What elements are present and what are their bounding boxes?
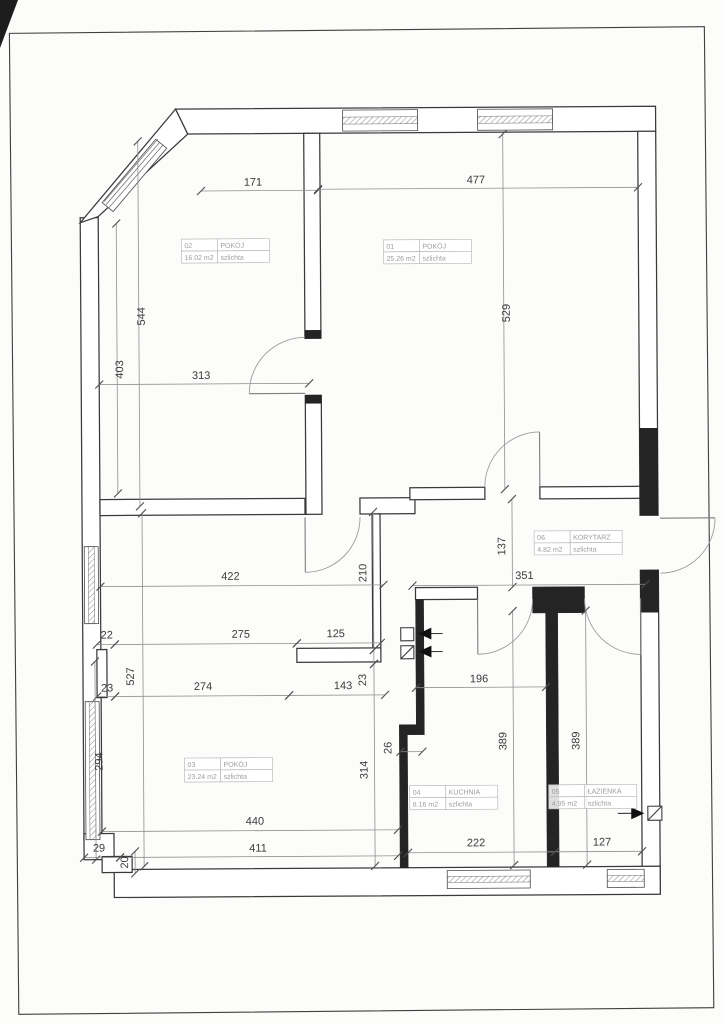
window-bottom-bath (607, 869, 644, 887)
airflow-right-arrow-icon (618, 808, 643, 818)
dimension-label: 275 (232, 629, 250, 641)
room-number: 03 (188, 762, 196, 769)
room-finish: szlichta (220, 255, 243, 262)
room-label: 04KUCHNIA8.16 m2szlichta (410, 785, 498, 810)
dimension: 477 (314, 173, 642, 193)
room-finish: szlichta (422, 255, 445, 262)
dimension-label: 544 (136, 307, 148, 325)
window-top-1 (343, 110, 418, 131)
dimension: 171 (197, 176, 322, 195)
dimension: 274 (111, 680, 293, 700)
wall-mid-left-b (360, 498, 415, 514)
dimension: 143 (285, 680, 389, 700)
door-room01 (485, 432, 540, 487)
dimension-label: 274 (194, 681, 212, 693)
room-finish: szlichta (449, 801, 472, 808)
dimension: 527 (124, 509, 148, 870)
door-entrance (660, 518, 715, 573)
dimension: 351 (408, 569, 649, 589)
dimension: 313 (95, 369, 313, 388)
room-name: KORYTARZ (573, 534, 611, 541)
room-label: 01POKÓJ25.26 m2szlichta (383, 239, 471, 264)
dimension: 389 (570, 607, 592, 869)
window-bottom-kitchen (447, 870, 530, 889)
dimension: 389 (497, 607, 519, 869)
dimension-label: 210 (357, 564, 369, 582)
dimension: 222 (404, 837, 559, 857)
dimension-label: 314 (359, 761, 371, 779)
door-room03 (305, 517, 360, 572)
vent-duct-diagonal-icon (648, 806, 662, 820)
wall-mid-right-b (540, 486, 640, 499)
dimension-label: 440 (246, 816, 264, 828)
wall-room01-02-lower (305, 395, 322, 514)
room-area: 23.24 m2 (188, 774, 217, 781)
room-name: POKÓJ (422, 241, 446, 250)
plan-geometry: 1714775445294033134222101373512227512552… (76, 106, 718, 898)
dimension-label: 389 (570, 731, 582, 749)
window-top-2 (478, 109, 553, 130)
dimension-label: 26 (382, 742, 394, 754)
dimension-label: 422 (221, 571, 239, 583)
dimension-label: 29 (93, 843, 105, 855)
room-finish: szlichta (224, 774, 247, 781)
wall-mid-right-a (410, 487, 485, 499)
dimension-label: 527 (125, 667, 137, 685)
dimension-label: 125 (327, 628, 345, 640)
dimension: 314 (358, 660, 379, 870)
room-finish: szlichta (588, 800, 611, 807)
wall-kitchen-step (399, 725, 424, 735)
dimension: 529 (499, 130, 514, 493)
dimension-label: 389 (497, 732, 509, 750)
floor-plan-svg: 1714775445294033134222101373512227512552… (0, 0, 724, 1024)
window-left-1 (84, 547, 98, 624)
room-name: POKÓJ (224, 760, 248, 769)
dimension-label: 222 (467, 837, 485, 849)
wall-mid-left-a (100, 498, 305, 515)
wall-bottom (114, 866, 660, 897)
dimension-label: 137 (496, 537, 508, 555)
pier-kitchen-bath (532, 587, 584, 613)
wall-cap (305, 395, 321, 403)
dimension: 127 (551, 836, 646, 856)
wall-cap (305, 330, 321, 338)
dimension: 544 (134, 137, 149, 510)
room-number: 01 (386, 244, 394, 251)
room-label: 02POKÓJ16.02 m2szlichta (181, 239, 269, 264)
window-chamfer (102, 139, 167, 211)
dimension-label: 143 (334, 680, 352, 692)
wall-right-entry-pier (640, 570, 658, 612)
room-label: 06KORYTARZ4.82 m2szlichta (534, 530, 622, 555)
room-number: 02 (184, 243, 192, 250)
room-area: 8.16 m2 (413, 802, 438, 809)
wall-notch (297, 648, 381, 663)
dimension-label: 529 (501, 304, 513, 322)
scanned-floor-plan-page: 1714775445294033134222101373512227512552… (0, 0, 724, 1024)
room-area: 4.82 m2 (537, 547, 562, 554)
dimension-label: 20 (119, 856, 131, 868)
wall-right-lower (640, 570, 660, 894)
dimension: 422 (96, 570, 387, 591)
room-finish: szlichta (573, 547, 596, 554)
dimension-label: 477 (467, 174, 485, 186)
dimension-label: 403 (114, 360, 126, 378)
dimension: 411 (116, 842, 402, 862)
room-area: 25.26 m2 (386, 256, 415, 263)
wall-corridor-bottom (415, 587, 477, 599)
room-name: POKÓJ (220, 241, 244, 250)
dimension: 137 (496, 495, 517, 591)
dimension-label: 22 (101, 630, 113, 642)
wall-kitchen-bath (546, 613, 560, 867)
dimension: 275 (111, 628, 301, 648)
dimension-label: 127 (593, 836, 611, 848)
room-number: 05 (552, 789, 560, 796)
vent-duct-icon (401, 628, 414, 641)
dimension-label: 294 (93, 752, 105, 770)
room-area: 16.02 m2 (184, 255, 213, 262)
room-number: 06 (537, 535, 545, 542)
dimension-label: 351 (515, 570, 533, 582)
dimension-label: 411 (249, 843, 267, 855)
room-area: 4.95 m2 (552, 801, 577, 808)
dimension-label: 196 (470, 673, 488, 685)
dimension: 125 (293, 628, 385, 648)
wall-room01-02-upper (304, 133, 321, 338)
dimension: 403 (112, 219, 127, 497)
door-room02 (249, 337, 305, 393)
door-kitchen (478, 599, 533, 654)
dimension: 196 (412, 673, 550, 692)
wall-kitchen-left-lower (399, 735, 408, 868)
room-name: ŁAZIENKA (588, 788, 622, 795)
wall-kitchen-left-upper (416, 600, 425, 725)
dimension-label: 313 (192, 370, 210, 382)
room-number: 04 (413, 790, 421, 797)
vent-duct-diagonal-icon (401, 646, 414, 659)
dimension-label: 23 (101, 683, 113, 695)
room-name: KUCHNIA (449, 789, 481, 796)
dimension-label: 171 (244, 177, 262, 189)
dimension-label: 23 (357, 674, 369, 686)
wall-right-solid-pier (639, 428, 658, 515)
room-label: 05ŁAZIENKA4.95 m2szlichta (549, 784, 637, 809)
room-label: 03POKÓJ23.24 m2szlichta (184, 758, 272, 783)
door-bathroom (585, 598, 641, 654)
